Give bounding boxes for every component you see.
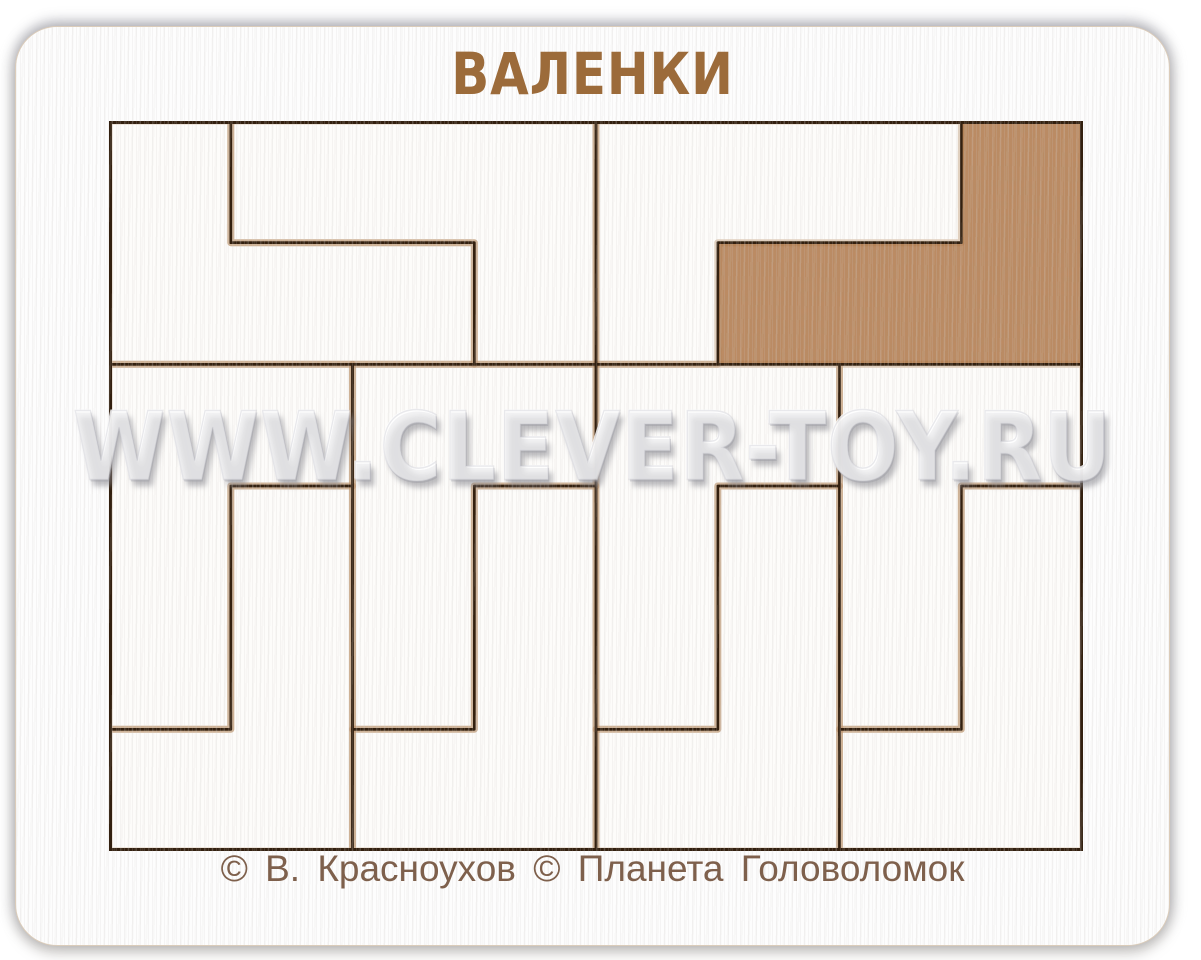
copyright-line: © В. Красноухов © Планета Головоломок	[16, 839, 1169, 899]
puzzle-board: ВАЛЕНКИ WWW.CLEVER-TOY.RU © В. Красноухо…	[15, 26, 1170, 946]
watermark: WWW.CLEVER-TOY.RU	[16, 395, 1169, 498]
product-photo: ВАЛЕНКИ WWW.CLEVER-TOY.RU © В. Красноухо…	[0, 0, 1201, 960]
puzzle-title: ВАЛЕНКИ	[97, 31, 1089, 117]
